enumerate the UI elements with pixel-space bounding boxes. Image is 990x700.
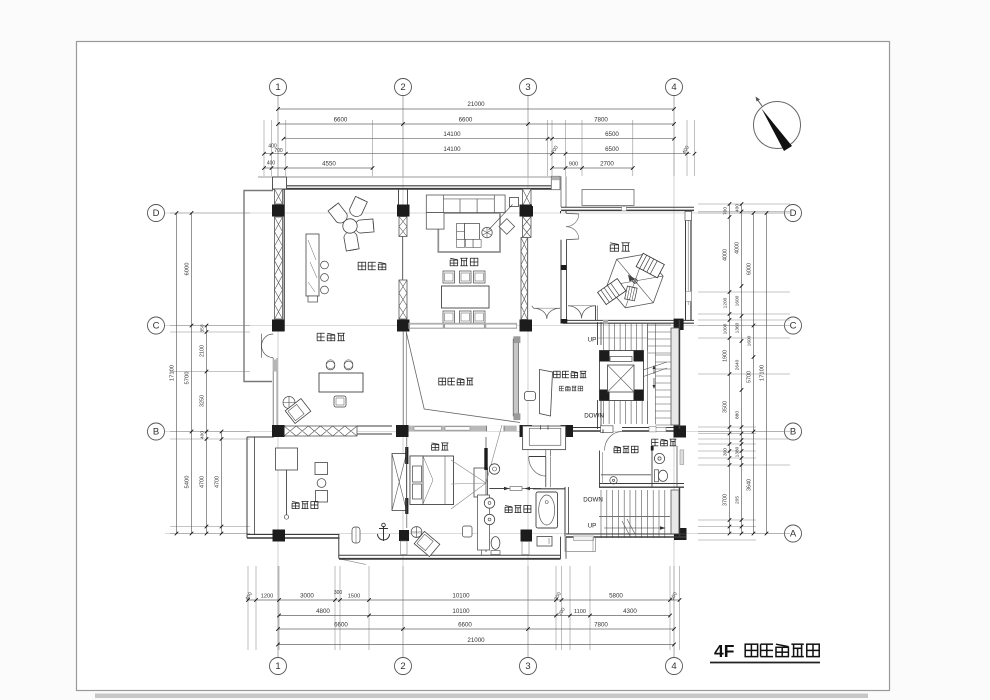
svg-text:B: B	[153, 427, 159, 438]
svg-text:5700: 5700	[747, 371, 753, 383]
svg-text:A: A	[790, 529, 797, 540]
svg-text:400: 400	[267, 161, 276, 167]
svg-text:1000: 1000	[723, 323, 729, 334]
svg-text:C: C	[153, 321, 160, 332]
svg-text:B: B	[790, 427, 796, 438]
svg-text:17100: 17100	[760, 365, 766, 381]
svg-text:3: 3	[525, 82, 530, 93]
svg-text:D: D	[790, 208, 797, 219]
svg-text:14100: 14100	[443, 146, 461, 153]
svg-text:5800: 5800	[609, 593, 623, 600]
svg-text:UP: UP	[588, 523, 597, 530]
svg-text:UP: UP	[588, 337, 597, 344]
svg-text:DOWN: DOWN	[583, 497, 603, 504]
svg-text:3: 3	[525, 661, 530, 672]
svg-text:1: 1	[275, 661, 280, 672]
svg-text:2: 2	[400, 82, 405, 93]
svg-text:6600: 6600	[458, 622, 472, 629]
svg-text:17100: 17100	[170, 365, 176, 381]
svg-text:3500: 3500	[723, 401, 729, 413]
svg-text:1600: 1600	[735, 295, 741, 306]
svg-text:4700: 4700	[215, 476, 221, 488]
svg-text:4800: 4800	[316, 608, 330, 615]
svg-text:10100: 10100	[452, 593, 470, 600]
svg-text:700: 700	[274, 148, 283, 154]
svg-text:5400: 5400	[185, 476, 191, 489]
svg-text:1100: 1100	[574, 609, 586, 615]
svg-text:4700: 4700	[200, 476, 206, 488]
svg-text:14100: 14100	[443, 131, 461, 138]
svg-text:1: 1	[275, 82, 280, 93]
svg-text:1200: 1200	[261, 594, 273, 600]
svg-text:350: 350	[200, 324, 206, 332]
svg-text:400: 400	[200, 431, 206, 439]
svg-text:6500: 6500	[605, 146, 619, 153]
svg-text:2: 2	[400, 661, 405, 672]
svg-text:6500: 6500	[605, 131, 619, 138]
svg-text:6000: 6000	[185, 263, 191, 276]
svg-text:6600: 6600	[334, 622, 348, 629]
svg-text:4000: 4000	[735, 242, 741, 254]
svg-text:4300: 4300	[623, 608, 637, 615]
svg-text:2700: 2700	[600, 161, 614, 168]
svg-text:1500: 1500	[348, 594, 360, 600]
svg-text:1360: 1360	[735, 322, 741, 333]
svg-text:1600: 1600	[747, 335, 753, 346]
svg-text:7800: 7800	[594, 117, 608, 124]
svg-text:6000: 6000	[747, 263, 753, 275]
svg-text:3700: 3700	[723, 494, 729, 506]
svg-text:300: 300	[723, 448, 729, 456]
svg-text:2100: 2100	[200, 345, 206, 357]
svg-text:3250: 3250	[200, 395, 206, 407]
svg-text:900: 900	[569, 162, 578, 168]
svg-text:1900: 1900	[723, 350, 729, 362]
svg-text:205: 205	[735, 496, 741, 504]
svg-text:3640: 3640	[747, 479, 753, 491]
svg-text:7800: 7800	[594, 622, 608, 629]
svg-text:4F: 4F	[714, 641, 735, 661]
svg-text:1380: 1380	[735, 446, 741, 457]
svg-text:300: 300	[334, 590, 343, 596]
svg-text:4: 4	[671, 661, 676, 672]
svg-text:700: 700	[723, 207, 729, 215]
svg-text:6600: 6600	[459, 117, 473, 124]
svg-text:D: D	[153, 208, 160, 219]
svg-text:21000: 21000	[467, 101, 485, 108]
svg-text:4: 4	[671, 82, 676, 93]
svg-text:880: 880	[735, 411, 741, 419]
svg-text:DOWN: DOWN	[584, 413, 604, 420]
svg-text:6600: 6600	[334, 117, 348, 124]
svg-text:1200: 1200	[723, 297, 729, 308]
svg-text:21000: 21000	[467, 637, 485, 644]
svg-text:3000: 3000	[300, 593, 314, 600]
svg-text:2640: 2640	[735, 359, 741, 370]
svg-text:C: C	[790, 321, 797, 332]
svg-text:4000: 4000	[723, 249, 729, 261]
svg-text:5700: 5700	[185, 372, 191, 385]
svg-text:10100: 10100	[452, 608, 470, 615]
svg-text:400: 400	[735, 204, 741, 212]
svg-text:4550: 4550	[322, 161, 336, 168]
